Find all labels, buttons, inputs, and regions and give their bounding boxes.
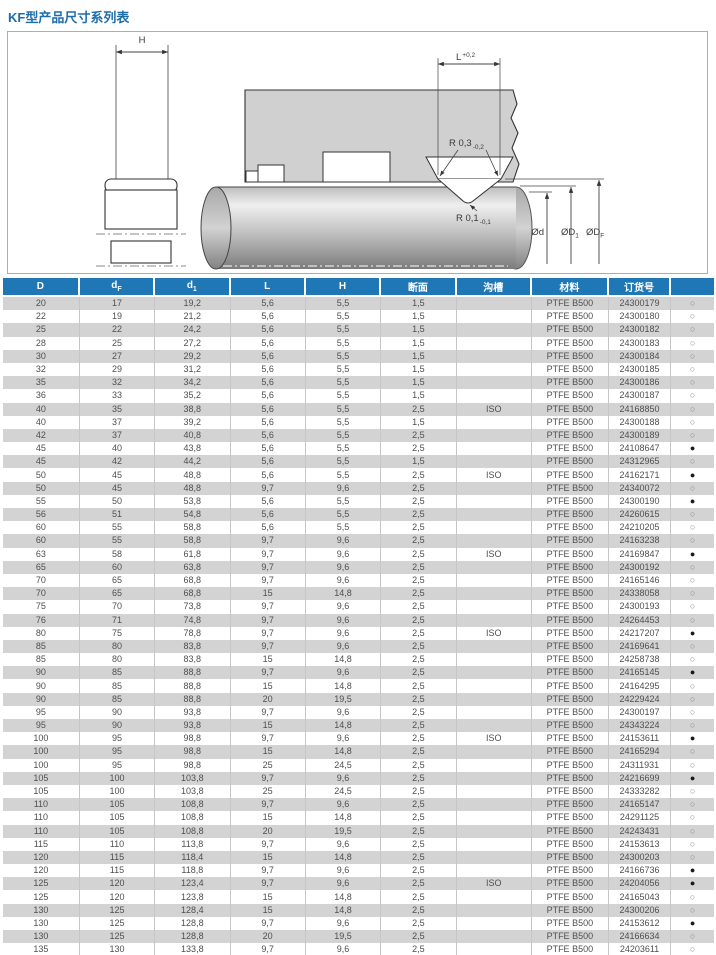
page-title: KF型产品尺寸系列表 [0,0,716,31]
table-cell: PTFE B500 [532,825,609,838]
table-cell: 58 [80,548,155,561]
table-cell: 2,5 [381,904,456,917]
table-cell: 5,5 [306,521,381,534]
table-cell: 5,6 [231,337,306,350]
table-cell: PTFE B500 [532,653,609,666]
table-cell: PTFE B500 [532,389,609,402]
table-cell: 73,8 [155,600,230,613]
table-cell: 90 [80,706,155,719]
table-cell: 125 [80,930,155,943]
table-cell [457,455,532,468]
table-cell: 5,5 [306,416,381,429]
table-cell: 9,7 [231,732,306,745]
table-cell: 2,5 [381,719,456,732]
table-cell: 24333282 [609,785,672,798]
table-row: 454043,85,65,52,5PTFE B50024108647● [3,442,714,455]
availability-indicator: ○ [671,785,714,798]
table-cell: 24217207 [609,627,672,640]
table-cell: 5,5 [306,337,381,350]
table-cell: PTFE B500 [532,627,609,640]
table-cell: 24300187 [609,389,672,402]
table-cell [457,798,532,811]
table-cell: 24153611 [609,732,672,745]
table-header-row: D dF d1 L H 断面 沟槽 材料 订货号 [3,278,714,297]
table-cell: 5,5 [306,468,381,481]
table-cell: 110 [80,838,155,851]
table-cell: 15 [231,587,306,600]
table-cell: 15 [231,890,306,903]
table-cell: PTFE B500 [532,732,609,745]
table-cell: 2,5 [381,587,456,600]
table-row: 605558,89,79,62,5PTFE B50024163238○ [3,534,714,547]
availability-indicator: ○ [671,930,714,943]
table-cell: 130 [80,943,155,955]
table-cell: 2,5 [381,759,456,772]
availability-indicator: ● [671,442,714,455]
table-cell: 14,8 [306,587,381,600]
availability-indicator: ○ [671,825,714,838]
table-cell [457,825,532,838]
table-row: 130125128,89,79,62,5PTFE B50024153612● [3,917,714,930]
table-cell: 19,2 [155,297,230,310]
table-cell: 75 [80,627,155,640]
table-cell: 24300192 [609,561,672,574]
table-cell: 74,8 [155,614,230,627]
table-cell: 2,5 [381,930,456,943]
table-cell: 19,5 [306,693,381,706]
availability-indicator: ○ [671,403,714,416]
table-cell: 9,6 [306,574,381,587]
table-cell: 24,5 [306,759,381,772]
table-cell: 130 [3,930,80,943]
seal-cross-section-drawing: L+0,2 R 0,3-0,2 R 0,1-0,1 Ød [8,32,707,273]
table-row: 858083,89,79,62,5PTFE B50024169641○ [3,640,714,653]
table-cell: 25 [3,323,80,336]
table-cell: 24300193 [609,600,672,613]
table-cell: 20 [231,930,306,943]
table-cell: 110 [3,825,80,838]
table-cell: 24300190 [609,495,672,508]
table-row: 403739,25,65,51,5PTFE B50024300188○ [3,416,714,429]
table-cell: 54,8 [155,508,230,521]
table-cell: 100 [80,785,155,798]
table-cell [457,759,532,772]
table-cell: 1,5 [381,416,456,429]
header-l: L [231,278,306,297]
header-section: 断面 [381,278,456,297]
table-row: 120115118,89,79,62,5PTFE B50024166736● [3,864,714,877]
table-cell: 5,6 [231,442,306,455]
table-cell [457,323,532,336]
table-cell: 2,5 [381,561,456,574]
table-cell: 2,5 [381,890,456,903]
seal-body-mirror [111,241,171,263]
table-cell: 14,8 [306,890,381,903]
table-cell: 9,6 [306,838,381,851]
table-cell [457,561,532,574]
table-cell: 80 [3,627,80,640]
table-cell: 29 [80,363,155,376]
table-cell: ISO [457,548,532,561]
table-cell [457,943,532,955]
table-cell: 9,6 [306,772,381,785]
table-cell: 42 [3,429,80,442]
table-row: 363335,25,65,51,5PTFE B50024300187○ [3,389,714,402]
availability-indicator: ○ [671,561,714,574]
table-cell: 9,7 [231,640,306,653]
table-cell: 2,5 [381,917,456,930]
table-cell: PTFE B500 [532,403,609,416]
table-cell: 24300180 [609,310,672,323]
table-cell: 2,5 [381,653,456,666]
table-cell: 90 [80,719,155,732]
table-cell: 24204056 [609,877,672,890]
table-cell: 43,8 [155,442,230,455]
availability-indicator: ○ [671,376,714,389]
table-cell: 24300183 [609,337,672,350]
table-cell: PTFE B500 [532,851,609,864]
table-cell [457,363,532,376]
table-cell: 9,6 [306,864,381,877]
table-cell: PTFE B500 [532,600,609,613]
table-cell [457,930,532,943]
table-cell: 90 [3,693,80,706]
table-cell: 50 [3,482,80,495]
table-cell: 24300182 [609,323,672,336]
availability-indicator: ● [671,666,714,679]
availability-indicator: ○ [671,455,714,468]
table-cell: 2,5 [381,785,456,798]
table-cell: 5,5 [306,323,381,336]
seal-ring-section-left [246,171,258,182]
table-cell [457,350,532,363]
table-cell: 9,6 [306,877,381,890]
table-cell: 9,6 [306,666,381,679]
table-cell: 2,5 [381,811,456,824]
availability-indicator: ● [671,627,714,640]
table-cell: 2,5 [381,745,456,758]
table-cell: 68,8 [155,574,230,587]
table-row: 807578,89,79,62,5ISOPTFE B50024217207● [3,627,714,640]
table-cell: 100 [80,772,155,785]
table-cell: 27,2 [155,337,230,350]
header-df: dF [80,278,155,297]
table-row: 1009598,81514,82,5PTFE B50024165294○ [3,745,714,758]
table-cell: 83,8 [155,653,230,666]
table-cell: PTFE B500 [532,811,609,824]
table-cell: 24311931 [609,759,672,772]
table-row: 115110113,89,79,62,5PTFE B50024153613○ [3,838,714,851]
table-cell: 9,6 [306,482,381,495]
table-cell: 98,8 [155,745,230,758]
availability-indicator: ○ [671,851,714,864]
table-cell: PTFE B500 [532,679,609,692]
table-cell: 88,8 [155,679,230,692]
table-cell: 9,7 [231,561,306,574]
table-cell: PTFE B500 [532,798,609,811]
availability-indicator: ○ [671,838,714,851]
table-row: 757073,89,79,62,5PTFE B50024300193○ [3,600,714,613]
table-cell: 48,8 [155,468,230,481]
table-cell: 9,6 [306,600,381,613]
table-cell: 24210205 [609,521,672,534]
table-cell: 9,7 [231,838,306,851]
table-cell: 128,8 [155,930,230,943]
table-cell: 110 [3,811,80,824]
table-cell [457,600,532,613]
table-cell: 24,2 [155,323,230,336]
table-cell: PTFE B500 [532,587,609,600]
availability-indicator: ○ [671,890,714,903]
availability-indicator: ● [671,468,714,481]
table-cell: 88,8 [155,666,230,679]
table-cell: 24165146 [609,574,672,587]
table-cell: 2,5 [381,706,456,719]
technical-drawing: L+0,2 R 0,3-0,2 R 0,1-0,1 Ød [7,31,708,274]
table-cell: 58,8 [155,534,230,547]
availability-indicator: ● [671,917,714,930]
table-cell: 33 [80,389,155,402]
table-cell: 20 [3,297,80,310]
table-cell: 2,5 [381,666,456,679]
table-cell: 2,5 [381,548,456,561]
table-cell: 108,8 [155,798,230,811]
table-cell: 2,5 [381,614,456,627]
table-row: 125120123,49,79,62,5ISOPTFE B50024204056… [3,877,714,890]
table-cell: 2,5 [381,534,456,547]
table-cell: 25 [80,337,155,350]
table-cell: 40,8 [155,429,230,442]
table-cell: 63,8 [155,561,230,574]
table-cell: 125 [80,904,155,917]
table-row: 322931,25,65,51,5PTFE B50024300185○ [3,363,714,376]
table-cell: PTFE B500 [532,350,609,363]
table-cell: 5,5 [306,508,381,521]
availability-indicator: ● [671,548,714,561]
table-cell: 1,5 [381,337,456,350]
table-cell: 15 [231,811,306,824]
table-row: 1009598,89,79,62,5ISOPTFE B50024153611● [3,732,714,745]
table-cell [457,864,532,877]
table-cell: 22 [80,323,155,336]
table-cell: 24300197 [609,706,672,719]
availability-indicator: ○ [671,679,714,692]
availability-indicator: ○ [671,416,714,429]
table-cell [457,297,532,310]
table-cell: PTFE B500 [532,468,609,481]
table-cell: 90 [3,666,80,679]
table-cell: 65 [3,561,80,574]
availability-indicator: ○ [671,297,714,310]
table-cell: 118,4 [155,851,230,864]
table-cell: 40 [3,416,80,429]
table-cell: PTFE B500 [532,376,609,389]
availability-indicator: ○ [671,587,714,600]
table-cell: PTFE B500 [532,890,609,903]
table-cell: 24300179 [609,297,672,310]
table-cell: 2,5 [381,877,456,890]
availability-indicator: ○ [671,521,714,534]
table-cell: 118,8 [155,864,230,877]
table-cell: 1,5 [381,323,456,336]
table-cell: PTFE B500 [532,508,609,521]
table-row: 908588,89,79,62,5PTFE B50024165145● [3,666,714,679]
header-order-number: 订货号 [609,278,672,297]
table-cell: 71 [80,614,155,627]
header-availability [671,278,714,297]
table-cell: PTFE B500 [532,706,609,719]
table-cell: 108,8 [155,825,230,838]
table-cell: 128,4 [155,904,230,917]
table-cell: 24165145 [609,666,672,679]
table-cell: 5,6 [231,323,306,336]
table-cell: 9,7 [231,534,306,547]
table-cell: 48,8 [155,482,230,495]
table-cell: 24153613 [609,838,672,851]
table-cell: 35,2 [155,389,230,402]
table-cell: ISO [457,468,532,481]
table-cell: 24166634 [609,930,672,943]
availability-indicator: ○ [671,508,714,521]
table-cell: 2,5 [381,679,456,692]
table-cell: 9,7 [231,666,306,679]
table-cell: PTFE B500 [532,561,609,574]
table-cell: 65 [80,587,155,600]
table-cell: 24168850 [609,403,672,416]
table-row: 221921,25,65,51,5PTFE B50024300180○ [3,310,714,323]
table-row: 130125128,82019,52,5PTFE B50024166634○ [3,930,714,943]
table-cell: 113,8 [155,838,230,851]
table-cell: 37 [80,429,155,442]
table-row: 635861,89,79,62,5ISOPTFE B50024169847● [3,548,714,561]
table-cell: 24164295 [609,679,672,692]
table-cell: 95 [80,732,155,745]
table-cell: 63 [3,548,80,561]
table-cell: 31,2 [155,363,230,376]
table-row: 767174,89,79,62,5PTFE B50024264453○ [3,614,714,627]
table-row: 110105108,81514,82,5PTFE B50024291125○ [3,811,714,824]
table-row: 201719,25,65,51,5PTFE B50024300179○ [3,297,714,310]
table-cell: 1,5 [381,389,456,402]
table-cell [457,310,532,323]
table-cell: 98,8 [155,732,230,745]
table-cell: 22 [3,310,80,323]
table-cell: 123,4 [155,877,230,890]
table-cell [457,890,532,903]
table-cell: 103,8 [155,772,230,785]
table-cell: 2,5 [381,732,456,745]
table-cell: 9,7 [231,917,306,930]
table-cell: 14,8 [306,719,381,732]
table-cell: 24340072 [609,482,672,495]
table-cell: 2,5 [381,482,456,495]
table-cell: 37 [80,416,155,429]
table-cell: 9,7 [231,798,306,811]
table-cell: 1,5 [381,310,456,323]
table-cell: 2,5 [381,627,456,640]
table-cell: 1,5 [381,363,456,376]
table-cell: 9,6 [306,798,381,811]
table-cell: PTFE B500 [532,864,609,877]
table-cell [457,666,532,679]
table-cell: 50 [3,468,80,481]
table-cell: 5,5 [306,363,381,376]
table-cell: 2,5 [381,403,456,416]
availability-indicator: ○ [671,389,714,402]
availability-indicator: ○ [671,693,714,706]
h-label: H [139,35,146,46]
table-row: 908588,82019,52,5PTFE B50024229424○ [3,693,714,706]
table-cell: 80 [80,653,155,666]
table-cell: 24165043 [609,890,672,903]
table-row: 110105108,82019,52,5PTFE B50024243431○ [3,825,714,838]
table-row: 105100103,82524,52,5PTFE B50024333282○ [3,785,714,798]
table-cell: PTFE B500 [532,640,609,653]
dia-df-label: ØDF [586,227,604,240]
table-cell: 24300185 [609,363,672,376]
availability-indicator: ○ [671,798,714,811]
availability-indicator: ○ [671,640,714,653]
table-cell: PTFE B500 [532,943,609,955]
availability-indicator: ○ [671,653,714,666]
table-cell: 45 [80,482,155,495]
table-cell: 85 [80,666,155,679]
table-cell: 70 [80,600,155,613]
table-cell: 5,5 [306,297,381,310]
l-dimension-label: L+0,2 [456,52,476,63]
table-cell: PTFE B500 [532,745,609,758]
table-row: 130125128,41514,82,5PTFE B50024300206○ [3,904,714,917]
table-row: 1009598,82524,52,5PTFE B50024311931○ [3,759,714,772]
table-cell [457,534,532,547]
table-row: 555053,85,65,52,5PTFE B50024300190● [3,495,714,508]
table-cell: 24169847 [609,548,672,561]
header-groove: 沟槽 [457,278,532,297]
table-cell: 45 [3,455,80,468]
availability-indicator: ○ [671,706,714,719]
table-cell: 125 [80,917,155,930]
table-cell: 130 [3,904,80,917]
dia-d1-label: ØD1 [561,227,579,240]
table-cell [457,508,532,521]
availability-indicator: ● [671,495,714,508]
table-cell: 24291125 [609,811,672,824]
table-cell: PTFE B500 [532,482,609,495]
table-cell: PTFE B500 [532,323,609,336]
table-cell: 5,6 [231,376,306,389]
availability-indicator: ○ [671,482,714,495]
table-cell: 9,6 [306,561,381,574]
table-cell: 27 [80,350,155,363]
table-cell: 2,5 [381,442,456,455]
table-cell: 19 [80,310,155,323]
table-cell: 95 [80,759,155,772]
table-cell: 24343224 [609,719,672,732]
table-row: 656063,89,79,62,5PTFE B50024300192○ [3,561,714,574]
availability-indicator: ○ [671,943,714,955]
table-cell [457,640,532,653]
table-cell: 9,7 [231,706,306,719]
table-row: 252224,25,65,51,5PTFE B50024300182○ [3,323,714,336]
table-cell: 15 [231,679,306,692]
table-cell: 40 [3,403,80,416]
table-row: 454244,25,65,51,5PTFE B50024312965○ [3,455,714,468]
table-cell: 24258738 [609,653,672,666]
table-cell: 95 [3,719,80,732]
table-cell: 24312965 [609,455,672,468]
table-cell: PTFE B500 [532,429,609,442]
table-cell: 9,7 [231,877,306,890]
